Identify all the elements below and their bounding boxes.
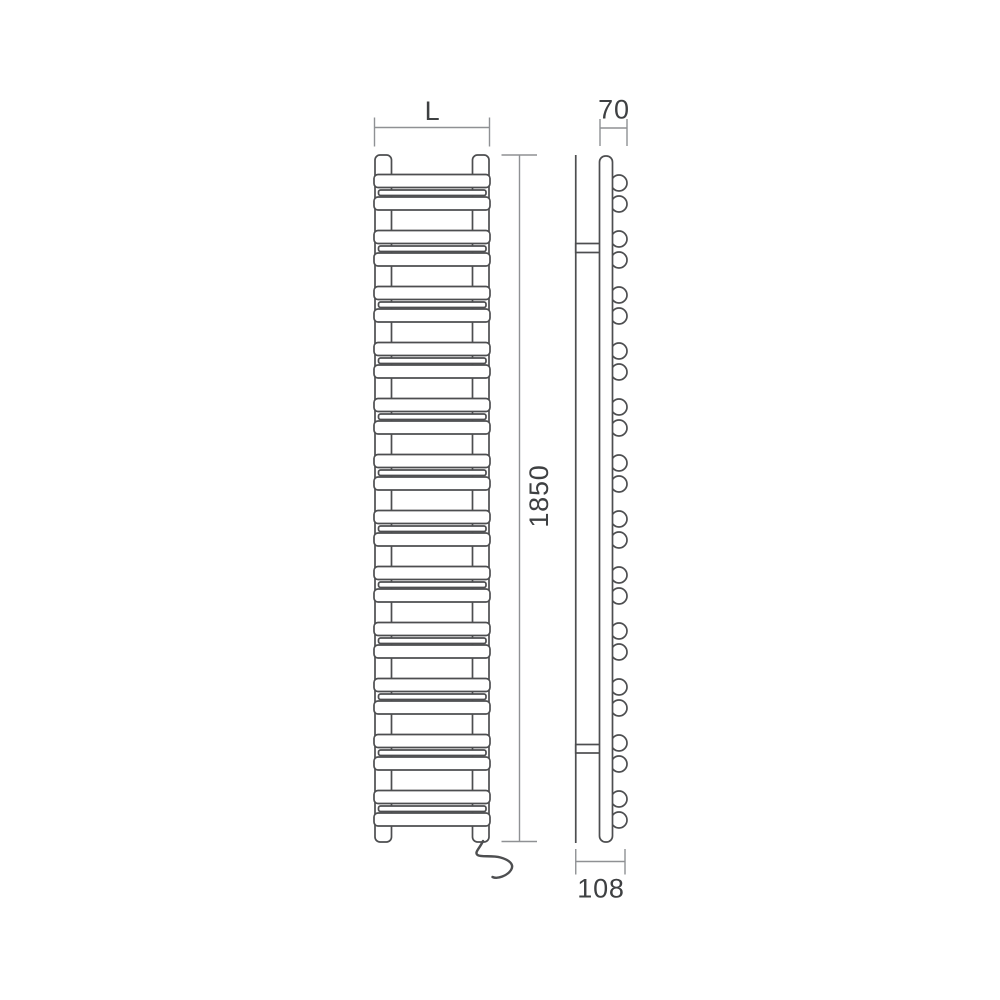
front-tube-strip [379,582,487,588]
dimension-height-label: 1850 [524,464,554,527]
front-tube-strip [379,526,487,532]
side-tube-end [611,679,627,695]
side-collector [600,156,613,842]
side-tube-end [611,287,627,303]
front-tube-bar [374,757,490,770]
side-tube-end [611,175,627,191]
front-tube-strip [379,638,487,644]
front-tube-bar [374,645,490,658]
side-tube-end [611,532,627,548]
side-tube-end [611,735,627,751]
side-tube-end [611,252,627,268]
side-tube-end [611,791,627,807]
front-tube-strip [379,190,487,196]
front-tube-strip [379,246,487,252]
front-tube-bar [374,421,490,434]
front-tube-bar [374,589,490,602]
front-tube-bar [374,791,490,804]
front-tube-bar [374,623,490,636]
side-tube-end [611,364,627,380]
drawing-svg: L 1850 70 108 [0,0,1000,1000]
front-tube-bar [374,813,490,826]
front-tube-bar [374,253,490,266]
front-tube-strip [379,694,487,700]
dimension-height: 1850 [502,155,555,842]
dimension-wall-depth: 108 [576,849,625,904]
side-tube-end [611,700,627,716]
front-tube-bar [374,511,490,524]
front-tube-bar [374,365,490,378]
dimension-depth-label: 70 [598,95,630,125]
side-tube-end [611,231,627,247]
side-tube-end [611,476,627,492]
side-view [576,155,627,843]
front-tube-strip [379,302,487,308]
front-tube-bar [374,231,490,244]
front-tube-bar [374,399,490,412]
side-tube-ends [611,175,627,828]
technical-drawing: L 1850 70 108 [0,0,1000,1000]
front-tube-bar [374,343,490,356]
front-tube-strip [379,414,487,420]
side-tube-end [611,455,627,471]
dimension-depth: 70 [598,95,630,147]
front-tube-bar [374,567,490,580]
front-tube-bar [374,197,490,210]
front-view [374,155,512,878]
side-tube-end [611,343,627,359]
front-tube-bar [374,287,490,300]
side-tube-end [611,588,627,604]
front-tube-bar [374,175,490,188]
front-tube-bar [374,679,490,692]
front-tube-strip [379,806,487,812]
front-tube-bar [374,455,490,468]
side-tube-end [611,567,627,583]
side-tube-end [611,812,627,828]
side-tube-end [611,420,627,436]
side-tube-end [611,623,627,639]
front-tube-bar [374,477,490,490]
side-tube-end [611,756,627,772]
front-tube-strip [379,358,487,364]
front-tube-bar [374,701,490,714]
power-cable-line [476,841,512,878]
side-tube-end [611,308,627,324]
side-tube-end [611,399,627,415]
front-tube-strip [379,470,487,476]
front-tube-bar [374,533,490,546]
wall-bracket-bottom [576,745,602,754]
front-tube-bar [374,735,490,748]
front-tube-strip [379,750,487,756]
dimension-wall-depth-label: 108 [577,874,624,904]
wall-bracket-top [576,244,602,253]
dimension-width: L [375,96,490,147]
front-tube-bar [374,309,490,322]
dimension-width-label: L [425,96,441,126]
side-tube-end [611,511,627,527]
side-tube-end [611,644,627,660]
side-tube-end [611,196,627,212]
